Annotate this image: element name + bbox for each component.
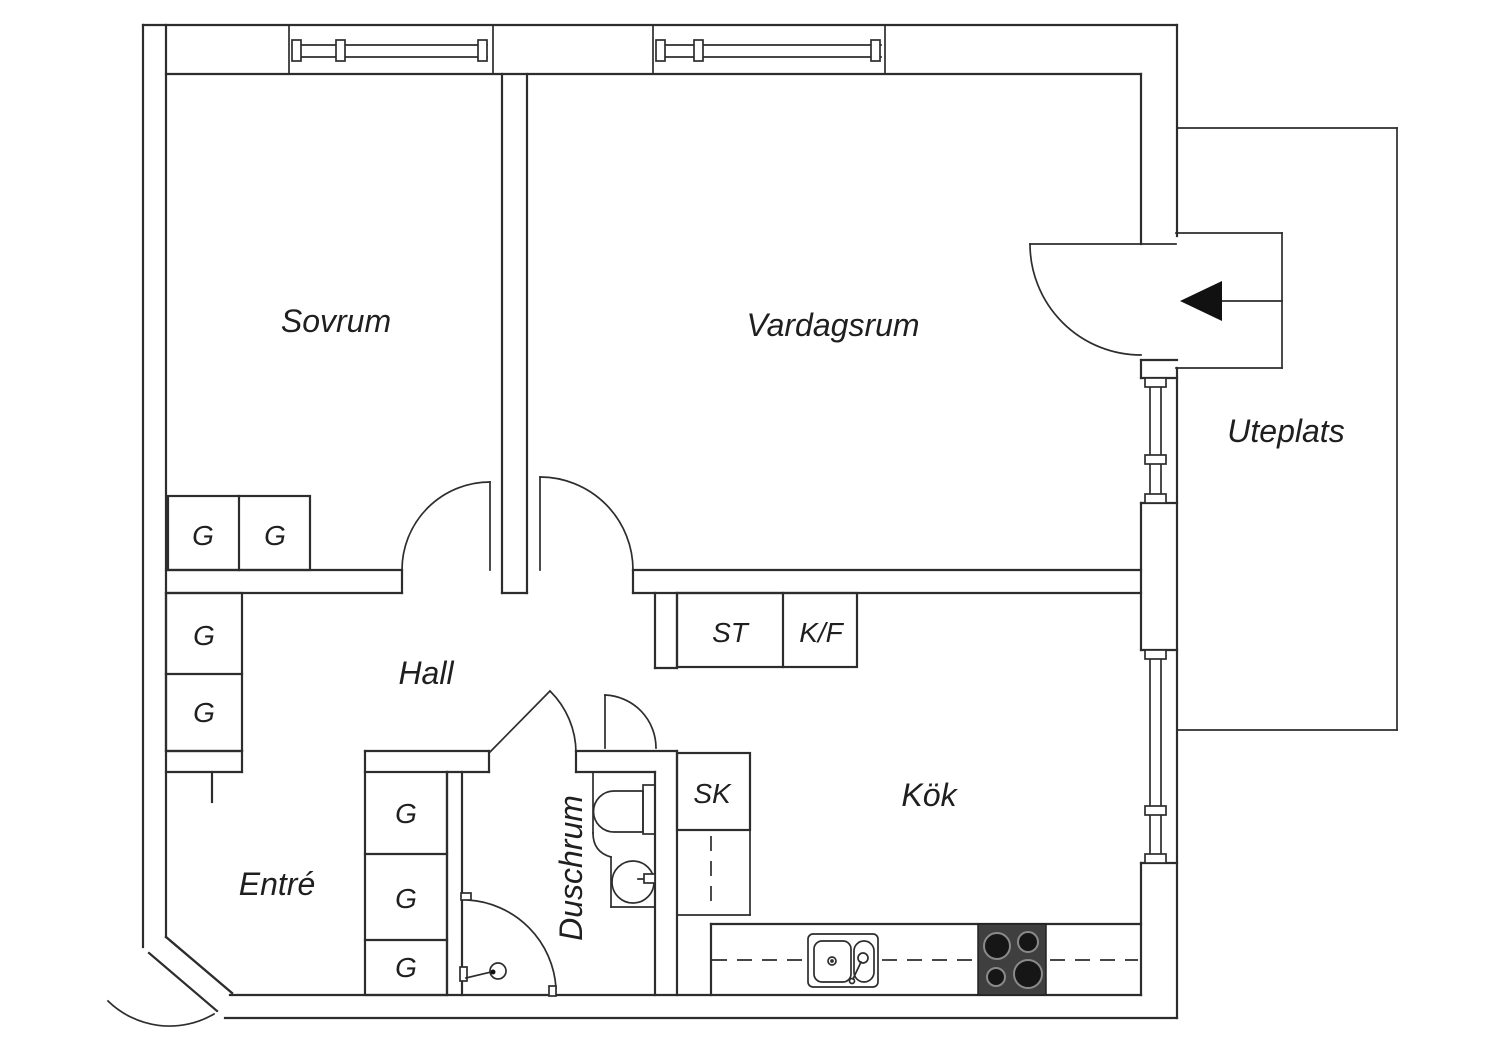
- entry-arrow-icon: [1180, 281, 1222, 321]
- label-hall: Hall: [398, 655, 454, 691]
- label-sk: SK: [693, 778, 732, 809]
- label-vardagsrum: Vardagsrum: [746, 307, 919, 343]
- shower-enclosure: [460, 893, 556, 996]
- floor-plan-drawing: Sovrum Vardagsrum Uteplats Hall Entré Kö…: [0, 0, 1500, 1060]
- closet-sovrum-wardrobes: [168, 496, 310, 570]
- label-entre: Entré: [239, 866, 315, 902]
- door-sovrum: [402, 482, 490, 570]
- window-vardagsrum-right: [1145, 378, 1166, 503]
- label-wardrobe-hall-1: G: [193, 620, 215, 651]
- label-wardrobe-col-1: G: [395, 798, 417, 829]
- door-uteplats: [1030, 244, 1176, 355]
- window-kok-right: [1145, 650, 1166, 863]
- kitchen-counter: [711, 924, 1141, 995]
- label-kf: K/F: [799, 617, 844, 648]
- washbasin: [593, 833, 655, 907]
- toilet: [594, 785, 656, 834]
- label-kok: Kök: [901, 777, 958, 813]
- label-uteplats: Uteplats: [1227, 413, 1344, 449]
- label-wardrobe-sovrum-2: G: [264, 520, 286, 551]
- kitchen-sink: [808, 934, 878, 987]
- label-wardrobe-col-3: G: [395, 952, 417, 983]
- window-sovrum-top: [289, 25, 493, 74]
- entrance-door: [108, 937, 232, 1026]
- label-wardrobe-col-2: G: [395, 883, 417, 914]
- door-vardagsrum: [540, 477, 633, 570]
- interior-walls: [166, 74, 1177, 995]
- label-wardrobe-sovrum-1: G: [192, 520, 214, 551]
- kitchen-stove: [978, 924, 1046, 995]
- door-kok: [605, 695, 656, 748]
- floor-plan-page: Sovrum Vardagsrum Uteplats Hall Entré Kö…: [0, 0, 1500, 1060]
- door-duschrum: [489, 691, 576, 753]
- label-st: ST: [712, 617, 750, 648]
- label-duschrum: Duschrum: [553, 795, 589, 941]
- entry-porch: [1176, 233, 1282, 368]
- window-vardagsrum-top: [653, 25, 885, 74]
- label-sovrum: Sovrum: [281, 303, 391, 339]
- label-wardrobe-hall-2: G: [193, 697, 215, 728]
